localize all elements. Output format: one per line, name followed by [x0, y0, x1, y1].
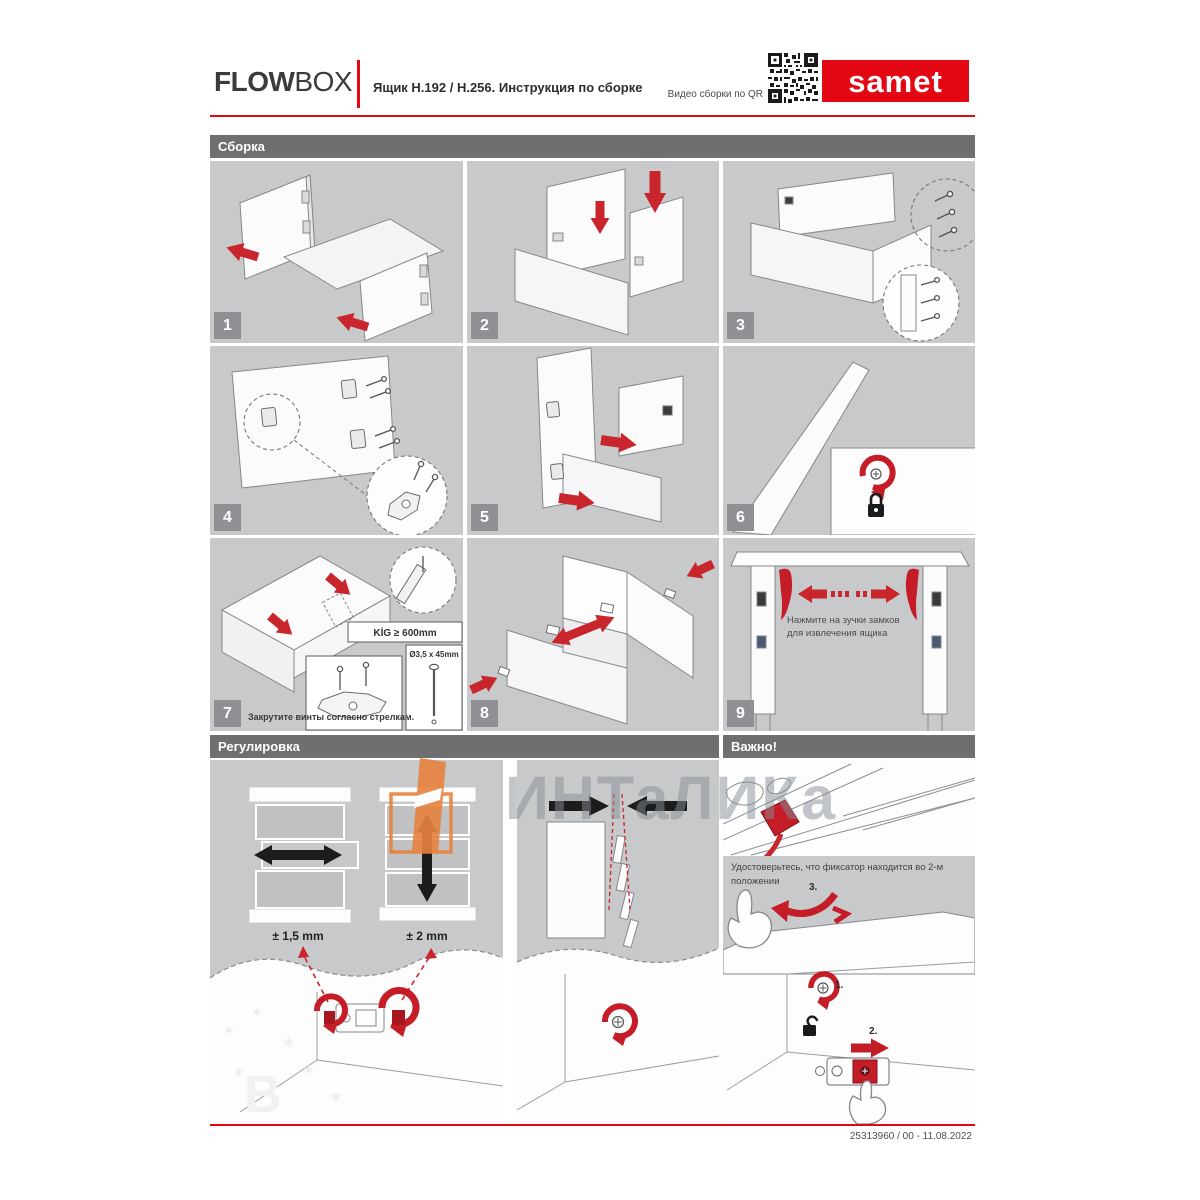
- pointing-hand-icon: [850, 1081, 886, 1124]
- step-7-illustration: KİG ≥ 600mm Ø3,5 x 45mm: [210, 538, 463, 731]
- latch-mechanism: [816, 1058, 890, 1085]
- step-panel-6: 6: [723, 346, 975, 535]
- magnifier-circle: [911, 179, 975, 251]
- adjustment-illustration: ✶✶✶ ✶✶✶✶ В ± 1,5 mm: [210, 760, 503, 1124]
- marker-1: 1.: [835, 980, 843, 991]
- section-important: Важно!: [723, 735, 975, 758]
- flowbox-logo-light: BOX: [294, 66, 352, 97]
- qr-code-icon: [768, 53, 818, 103]
- black-facing-arrows: [549, 796, 687, 816]
- step-number-badge: 2: [471, 312, 498, 339]
- label-vertical: ± 2 mm: [406, 929, 447, 943]
- detail-magnifier: [883, 265, 959, 341]
- detail-magnifier: [367, 456, 447, 535]
- faint-letter: В: [244, 1066, 282, 1124]
- step-9-note: Нажмите на зучки замков для извлечения я…: [787, 614, 907, 641]
- section-assembly: Сборка: [210, 135, 975, 158]
- qr-caption: Видео сборки по QR: [605, 89, 763, 100]
- adjust-vertical-diagram: [380, 788, 475, 920]
- adjustment-panel-side: [517, 760, 719, 1124]
- step-panel-1: 1: [210, 161, 463, 343]
- step-panel-2: 2: [467, 161, 719, 343]
- screw-size-box: Ø3,5 x 45mm: [406, 645, 462, 730]
- header-divider: [357, 60, 360, 108]
- instruction-page: FLOWBOX Ящик Н.192 / Н.256. Инструкция п…: [0, 0, 1200, 1200]
- important-note: Удостоверьтесь, что фиксатор находится в…: [731, 861, 969, 889]
- step-2-illustration: [467, 161, 719, 343]
- side-adjustment-illustration: [517, 760, 719, 1124]
- red-arrow-icon: [851, 1039, 889, 1058]
- rail-line-art: [723, 764, 975, 855]
- footer-rule: [210, 1124, 975, 1126]
- svg-text:✶: ✶: [328, 1088, 344, 1109]
- marker-2: 2.: [869, 1026, 877, 1037]
- document-number: 25313960 / 00 - 11.08.2022: [210, 1131, 972, 1142]
- adjustment-panel-main: ✶✶✶ ✶✶✶✶ В ± 1,5 mm: [210, 760, 503, 1124]
- step-panel-3: 3: [723, 161, 975, 343]
- samet-logo: samet: [822, 60, 969, 102]
- step-number-badge: 4: [214, 504, 241, 531]
- drawer-rails: [751, 566, 947, 731]
- flowbox-logo: FLOWBOX: [214, 66, 352, 98]
- step-number-badge: 6: [727, 504, 754, 531]
- header-rule: [210, 115, 975, 117]
- step-panel-9: Нажмите на зучки замков для извлечения я…: [723, 538, 975, 731]
- step-panel-7: KİG ≥ 600mm Ø3,5 x 45mm 7 Закрутите винт…: [210, 538, 463, 731]
- step-8-illustration: [467, 538, 719, 731]
- svg-text:Ø3,5 x 45mm: Ø3,5 x 45mm: [409, 650, 458, 659]
- section-adjustment: Регулировка: [210, 735, 719, 758]
- svg-text:✶: ✶: [302, 1063, 315, 1080]
- step-6-illustration: [723, 346, 975, 535]
- step-number-badge: 3: [727, 312, 754, 339]
- label-horizontal: ± 1,5 mm: [272, 929, 323, 943]
- step-panel-5: 5: [467, 346, 719, 535]
- step-number-badge: 1: [214, 312, 241, 339]
- svg-text:✶: ✶: [222, 1023, 235, 1040]
- svg-text:KİG ≥ 600mm: KİG ≥ 600mm: [373, 626, 436, 639]
- page-content: FLOWBOX Ящик Н.192 / Н.256. Инструкция п…: [210, 0, 975, 1200]
- screws: [935, 191, 957, 237]
- important-illustration: [723, 760, 975, 1124]
- red-arrow-icon: [798, 585, 900, 603]
- rotate-icon: [811, 974, 837, 1010]
- step-7-caption: Закрутите винты согласно стрелкам.: [248, 712, 414, 722]
- step-number-badge: 7: [214, 700, 241, 727]
- step-number-badge: 9: [727, 700, 754, 727]
- flowbox-logo-bold: FLOW: [214, 66, 294, 97]
- lock-open-icon: [803, 1015, 818, 1036]
- step-5-illustration: [467, 346, 719, 535]
- step-panel-8: 8: [467, 538, 719, 731]
- svg-text:✶: ✶: [250, 1005, 263, 1022]
- drawer-side-view: [547, 822, 605, 938]
- important-panel: Удостоверьтесь, что фиксатор находится в…: [723, 760, 975, 1124]
- step-number-badge: 8: [471, 700, 498, 727]
- page-title: Ящик Н.192 / Н.256. Инструкция по сборке: [373, 80, 642, 95]
- step-number-badge: 5: [471, 504, 498, 531]
- adjust-horizontal-diagram: [250, 788, 358, 922]
- step-4-illustration: [210, 346, 463, 535]
- svg-text:✶: ✶: [280, 1033, 297, 1055]
- step-panel-4: 4: [210, 346, 463, 535]
- marker-3: 3.: [809, 882, 817, 893]
- kig-label-box: KİG ≥ 600mm: [348, 622, 462, 642]
- step-3-illustration: [723, 161, 975, 343]
- step-1-illustration: [210, 161, 463, 343]
